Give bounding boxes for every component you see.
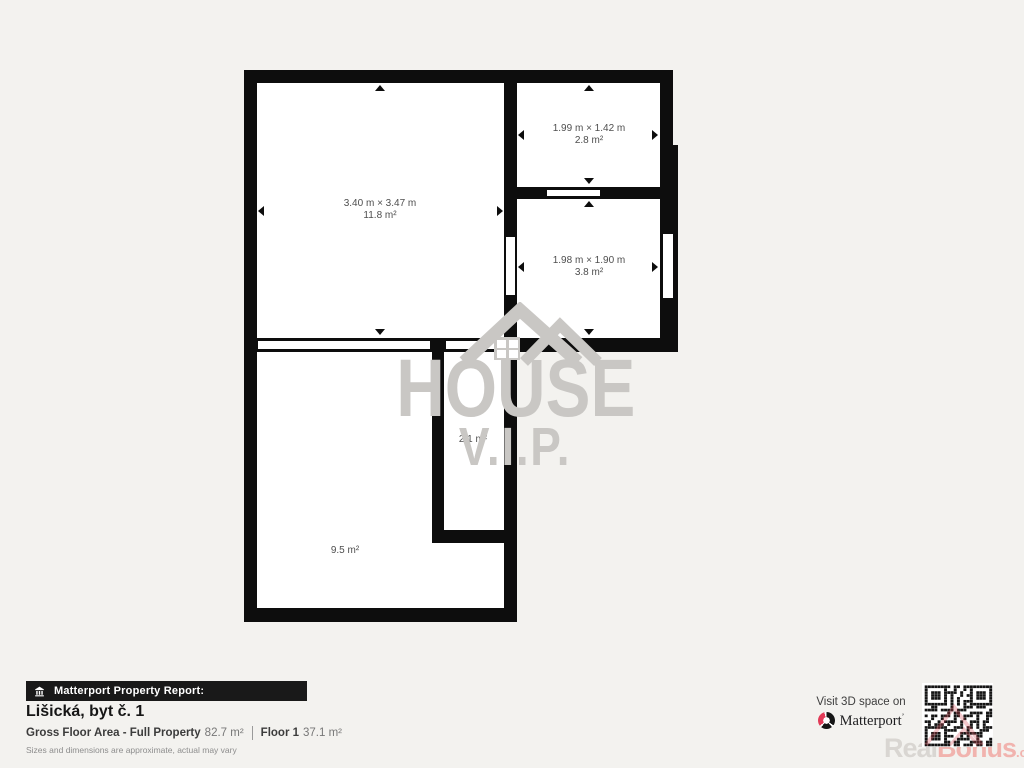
floor-value: 37.1 m² bbox=[303, 727, 342, 739]
separator bbox=[252, 726, 253, 740]
badge-label: Matterport Property Report: bbox=[54, 685, 204, 697]
qr-code[interactable] bbox=[922, 683, 993, 747]
door-opening bbox=[446, 341, 503, 349]
measure-arrow-down-icon bbox=[375, 329, 385, 335]
measure-arrow-left-icon bbox=[258, 206, 264, 216]
visit-3d-label: Visit 3D space on bbox=[806, 696, 916, 708]
disclaimer-text: Sizes and dimensions are approximate, ac… bbox=[26, 745, 237, 755]
door-opening bbox=[547, 190, 600, 196]
room-area: 2.8 m² bbox=[509, 135, 669, 147]
measure-arrow-down-icon bbox=[584, 178, 594, 184]
building-icon bbox=[33, 685, 46, 698]
room-area: 9.5 m² bbox=[285, 545, 405, 557]
matterport-wordmark: Matterport’ bbox=[840, 712, 905, 730]
matterport-report-badge: Matterport Property Report: bbox=[26, 681, 307, 701]
area-summary: Gross Floor Area - Full Property 82.7 m²… bbox=[26, 726, 342, 740]
property-title: Lišická, byt č. 1 bbox=[26, 703, 144, 721]
room-label-rightmiddle: 1.98 m × 1.90 m 3.8 m² bbox=[509, 255, 669, 279]
wall bbox=[244, 70, 673, 83]
room-area: 2.1 m² bbox=[433, 434, 513, 446]
room-label-bottom: 9.5 m² bbox=[285, 545, 405, 557]
matterport-logo-icon bbox=[818, 712, 835, 729]
measure-arrow-right-icon bbox=[497, 206, 503, 216]
room-label-topright: 1.99 m × 1.42 m 2.8 m² bbox=[509, 123, 669, 147]
room-dimensions: 1.99 m × 1.42 m bbox=[509, 123, 669, 135]
measure-arrow-up-icon bbox=[584, 201, 594, 207]
wall bbox=[432, 530, 517, 543]
room-area: 11.8 m² bbox=[300, 210, 460, 222]
measure-arrow-up-icon bbox=[584, 85, 594, 91]
qr-code-image bbox=[922, 683, 993, 747]
floor-label: Floor 1 bbox=[261, 727, 299, 739]
wall bbox=[244, 608, 517, 622]
room-label-living: 3.40 m × 3.47 m 11.8 m² bbox=[300, 198, 460, 222]
matterport-brand-link[interactable]: Matterport’ bbox=[806, 712, 916, 730]
visit-3d-space[interactable]: Visit 3D space on Matterport’ bbox=[806, 696, 916, 730]
trademark-tick: ’ bbox=[902, 712, 905, 721]
room-label-corridor: 2.1 m² bbox=[433, 434, 513, 446]
gfa-label: Gross Floor Area - Full Property bbox=[26, 727, 201, 739]
measure-arrow-up-icon bbox=[375, 85, 385, 91]
room-dimensions: 1.98 m × 1.90 m bbox=[509, 255, 669, 267]
room-area: 3.8 m² bbox=[509, 267, 669, 279]
gfa-value: 82.7 m² bbox=[205, 727, 244, 739]
room-dimensions: 3.40 m × 3.47 m bbox=[300, 198, 460, 210]
measure-arrow-down-icon bbox=[584, 329, 594, 335]
window-opening bbox=[258, 341, 430, 349]
realbonus-suffix: .cz bbox=[1016, 745, 1024, 760]
floor-plan: 3.40 m × 3.47 m 11.8 m² 1.99 m × 1.42 m … bbox=[0, 0, 1024, 768]
